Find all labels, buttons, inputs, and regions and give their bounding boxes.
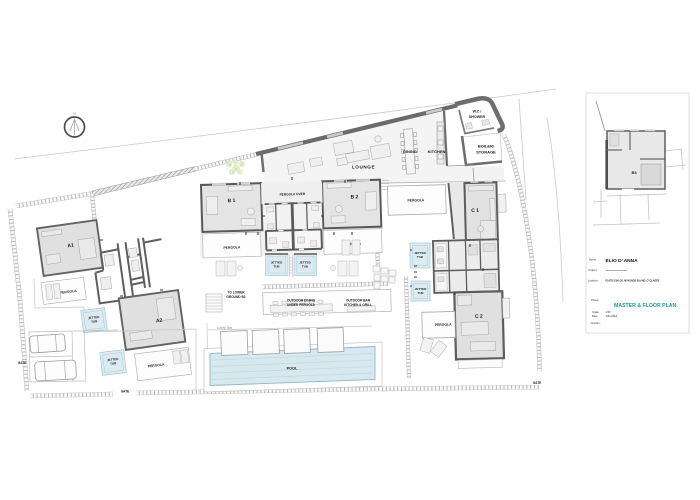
svg-text:PERGOLA OVER: PERGOLA OVER [279,192,305,197]
svg-text:KITCHEN: KITCHEN [428,149,446,154]
svg-text:Location:: Location: [588,279,599,283]
svg-text:W.C /: W.C / [473,110,482,114]
svg-text:MASTER & FLOOR PLAN: MASTER & FLOOR PLAN [614,303,677,309]
svg-text:UNDER PERGOLA: UNDER PERGOLA [287,303,316,307]
svg-text:C 2: C 2 [475,314,483,320]
svg-text:KITCHEN & GRILL: KITCHEN & GRILL [344,303,372,307]
svg-text:TUB: TUB [417,291,424,295]
svg-text:Date:: Date: [592,314,598,318]
svg-text:BOILER/: BOILER/ [478,144,495,149]
svg-text:Project:: Project: [589,268,598,272]
svg-text:ELIO D’ ANNA: ELIO D’ ANNA [606,258,639,264]
svg-text:1:50: 1:50 [606,310,612,314]
svg-text:Number:: Number: [591,321,601,325]
svg-text:TUB: TUB [273,265,280,269]
svg-text:B 1: B 1 [228,198,236,204]
svg-text:B 2: B 2 [350,194,358,200]
svg-text:C 1: C 1 [471,208,479,214]
svg-text:1.20 M. Dep: 1.20 M. Dep [217,325,233,330]
svg-text:GATE: GATE [18,361,27,365]
svg-text:GROUND B2: GROUND B2 [226,295,245,299]
svg-text:PERGOLA: PERGOLA [407,198,424,202]
svg-text:Scale:: Scale: [592,310,599,314]
svg-text:GATE: GATE [121,390,130,394]
svg-text:JUN 2018: JUN 2018 [606,314,618,318]
svg-text:SHOWER: SHOWER [469,115,486,119]
svg-text:Name:: Name: [589,258,597,262]
svg-text:A2: A2 [156,318,163,325]
svg-text:N: N [73,111,76,116]
svg-text:DINING: DINING [403,149,417,154]
svg-text:OUTDOOR DINING: OUTDOOR DINING [287,299,316,303]
svg-text:Phase:: Phase: [591,298,599,302]
svg-text:TUB: TUB [417,255,424,259]
svg-text:PERGOLA: PERGOLA [435,323,452,327]
svg-text:STORAGE: STORAGE [476,150,496,155]
svg-text:B3: B3 [631,170,637,175]
svg-text:LOUNGE: LOUNGE [352,164,375,169]
svg-text:OUTDOOR BAR: OUTDOOR BAR [346,299,371,303]
svg-text:A1: A1 [67,242,74,249]
svg-text:POOL: POOL [287,367,298,371]
svg-text:TO LOWER: TO LOWER [227,291,245,295]
svg-text:GATE: GATE [533,381,542,385]
svg-text:TUB: TUB [302,265,309,269]
svg-text:PERGOLA: PERGOLA [223,245,240,250]
svg-text:PLATIS GIALOS, MYKONOS ISLAND,: PLATIS GIALOS, MYKONOS ISLAND, CYCLADES [606,280,660,283]
